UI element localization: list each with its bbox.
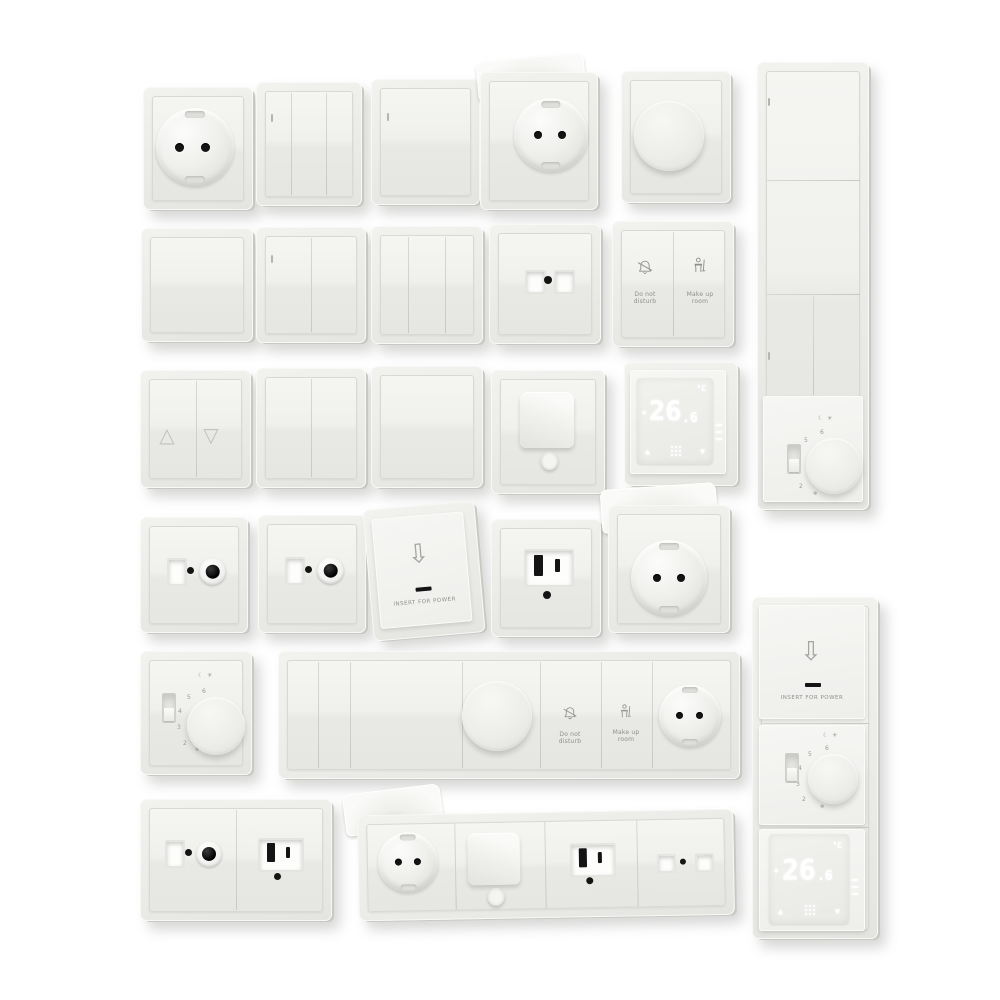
digital-thermostat-module: ❄ 26 .6 °C ▲ ▼ [759, 829, 865, 931]
tv-outlet [258, 515, 366, 633]
dial-number: 5 [804, 438, 808, 444]
frost-icon: ❄ [813, 492, 817, 497]
data-port [525, 270, 546, 294]
port-hole [185, 849, 192, 856]
dial-number: 2 [799, 484, 803, 490]
ground-hole [586, 877, 593, 884]
do-not-disturb-bell-icon [635, 257, 655, 277]
insert-for-power-label: INSERT FOR POWER [759, 695, 865, 701]
data-port [695, 853, 714, 872]
port-hole [544, 276, 552, 284]
schuko-socket-plate [143, 87, 253, 210]
shutter-up-icon: △ [154, 425, 180, 445]
rocker-divider [291, 93, 292, 195]
card-arrow-icon: ⇩ [800, 639, 822, 665]
cable-cover [467, 832, 520, 885]
shutter-switch: △ ▽ [140, 370, 251, 488]
switch-1gang [371, 79, 480, 205]
socket-pin-hole [558, 131, 566, 139]
data-port [167, 558, 187, 586]
us-outlet [491, 519, 601, 637]
rocker [380, 235, 474, 335]
socket-pin-hole [395, 859, 402, 866]
rocker-divider [311, 238, 312, 332]
socket-pin-hole [175, 143, 184, 152]
cable-hook [541, 452, 558, 470]
card-arrow-icon: ⇩ [406, 541, 430, 569]
rocker [265, 91, 353, 197]
night-icon: ☾ [823, 733, 828, 739]
cable-cover [520, 392, 574, 448]
schuko-socket [659, 685, 721, 747]
socket-pin-hole [677, 574, 685, 582]
frost-icon: ❄ [820, 805, 824, 810]
rocker-divider [311, 379, 312, 477]
cable-outlet [491, 370, 605, 494]
neutral-slot [267, 843, 275, 862]
day-icon: ☀ [207, 673, 212, 679]
switch-3gang [256, 82, 362, 206]
data-port [165, 840, 185, 868]
menu-dots-icon [804, 904, 815, 915]
rocker-divider [408, 237, 409, 333]
dial-number: 3 [177, 725, 181, 731]
shutter-down-icon: ▽ [198, 425, 224, 445]
decrease-button: ▼ [835, 908, 840, 916]
vertical-multiframe: ⇩ INSERT FOR POWER ☾ ☀ 6 5 4 3 2 ❄ ❄ 26 … [752, 597, 878, 939]
temperature-value: 26 [782, 856, 816, 884]
schuko-socket [631, 540, 707, 616]
mode-toggle [162, 693, 176, 723]
temperature-unit: °C [832, 842, 842, 850]
day-icon: ☀ [827, 416, 832, 422]
module-divider [350, 662, 351, 768]
thermostat-dial-knob [806, 438, 862, 494]
increase-button: ▲ [778, 908, 783, 916]
dimmer-knob [634, 101, 704, 171]
keycard-slot-cover: ⇩ INSERT FOR POWER [371, 511, 472, 629]
schuko-socket [514, 98, 588, 172]
coax-connector [196, 841, 222, 867]
card-slot [805, 683, 821, 687]
dial-number: 2 [183, 741, 187, 747]
section-divider [766, 180, 860, 181]
port-hole [305, 566, 312, 573]
mode-toggle [787, 444, 801, 474]
make-up-room-label: Make up room [604, 729, 648, 743]
night-icon: ☾ [818, 416, 823, 422]
ground-hole [274, 873, 281, 880]
switch-3gang [371, 226, 483, 344]
night-icon: ☾ [198, 673, 203, 679]
port-hole [680, 859, 686, 865]
outlet-recess [570, 843, 617, 878]
module-divider [540, 662, 541, 768]
make-up-room-person-icon [690, 255, 710, 275]
insert-for-power-label: INSERT FOR POWER [379, 595, 471, 609]
dial-thermostat-module: ☾ ☀ 6 5 4 3 2 ❄ [763, 396, 863, 502]
frost-icon: ❄ [774, 868, 778, 875]
combo-tv-us-plate [140, 799, 332, 921]
switch-2gang [256, 227, 366, 343]
coax-connector [199, 558, 226, 585]
switch-1gang [371, 366, 483, 488]
live-slot [598, 852, 602, 863]
dimmer-knob [462, 681, 532, 751]
increase-button: ▲ [645, 448, 650, 456]
vertical-multiframe: ☾ ☀ 6 5 4 3 2 ❄ [757, 62, 869, 510]
section-divider [761, 827, 869, 828]
dial-number: 4 [178, 709, 182, 715]
neutral-slot [579, 848, 587, 867]
decrease-button: ▼ [700, 448, 705, 456]
indicator-mark [387, 113, 389, 121]
coax-connector [317, 557, 344, 584]
section-divider [766, 294, 860, 295]
indicator-mark [768, 98, 770, 106]
neutral-slot [534, 555, 543, 576]
indicator-mark [271, 114, 273, 122]
temperature-decimal: .6 [817, 870, 833, 883]
socket-pin-hole [534, 131, 542, 139]
dial-thermostat-module: ☾ ☀ 6 5 4 3 2 ❄ [759, 725, 865, 825]
digital-thermostat: ❄ 26 .6 °C ▲ ▼ [624, 362, 738, 486]
lidded-schuko-socket [480, 72, 598, 210]
menu-dots-icon [670, 445, 681, 456]
day-icon: ☀ [832, 733, 837, 739]
module-divider [652, 662, 653, 768]
temperature-unit: °C [696, 385, 706, 393]
horizontal-multiframe [357, 809, 735, 922]
dial-thermostat: ☾ ☀ 6 5 4 3 2 ❄ [140, 651, 252, 775]
data-port [285, 557, 305, 585]
dial-number: 2 [802, 797, 806, 803]
lidded-schuko-socket [608, 505, 730, 633]
rocker [380, 88, 471, 196]
outlet-recess [258, 838, 304, 872]
do-not-disturb-label: Do not disturb [548, 731, 592, 745]
frost-icon: ❄ [642, 410, 646, 417]
make-up-room-person-icon [617, 702, 635, 720]
dial-number: 5 [187, 695, 191, 701]
thermostat-screen: ❄ 26 .6 °C ▲ ▼ [637, 378, 713, 464]
switch-1gang [141, 228, 253, 342]
thermostat-dial-knob [187, 697, 245, 755]
dial-number: 6 [820, 430, 824, 436]
data-outlet-2port [489, 224, 601, 344]
section-divider [761, 723, 869, 724]
schuko-socket [156, 108, 234, 186]
rocker-divider [326, 93, 327, 195]
button-divider [673, 232, 674, 336]
socket-pin-hole [676, 712, 683, 719]
port-hole [187, 567, 194, 574]
socket-pin-hole [201, 143, 210, 152]
thermostat-dial-knob [808, 754, 858, 804]
indicator-mark [271, 255, 273, 263]
dial-number: 6 [825, 746, 829, 752]
module-divider [601, 662, 602, 768]
socket-pin-hole [696, 712, 703, 719]
keycard-holder: ⇩ INSERT FOR POWER [362, 500, 485, 641]
dial-number: 6 [202, 689, 206, 695]
rocker [380, 375, 474, 479]
horizontal-multiframe: Do not disturb Make up room [278, 651, 740, 779]
thermostat-screen: ❄ 26 .6 °C ▲ ▼ [769, 834, 849, 924]
switch-2gang [256, 368, 366, 488]
dial-number: 5 [808, 752, 812, 758]
do-not-disturb-label: Do not disturb [625, 291, 665, 305]
rocker [150, 237, 244, 333]
module-divider [318, 662, 319, 768]
indicator-bars [716, 424, 722, 440]
mode-toggle [785, 753, 799, 783]
outlet-recess [524, 549, 574, 587]
rocker-divider [196, 381, 197, 477]
live-slot [286, 847, 290, 858]
data-port [554, 270, 575, 294]
temperature-decimal: .6 [682, 412, 698, 425]
data-port [657, 854, 676, 873]
module-divider [236, 810, 237, 910]
rocker-divider [445, 237, 446, 333]
rocker-divider [813, 296, 814, 395]
keycard-module: ⇩ INSERT FOR POWER [759, 605, 865, 719]
indicator-mark [768, 352, 770, 360]
hotel-service-plate: Do not disturb Make up room [612, 221, 734, 347]
ground-hole [543, 591, 551, 599]
live-slot [555, 559, 560, 572]
socket-pin-hole [414, 858, 421, 865]
make-up-room-label: Make up room [680, 291, 720, 305]
temperature-value: 26 [649, 398, 682, 425]
render-canvas: ☾ ☀ 6 5 4 3 2 ❄ [0, 0, 1000, 1000]
socket-pin-hole [653, 574, 661, 582]
tv-outlet [140, 517, 248, 633]
rotary-dimmer [621, 71, 731, 203]
do-not-disturb-bell-icon [561, 704, 579, 722]
indicator-bars [852, 879, 858, 895]
card-slot [415, 586, 431, 591]
